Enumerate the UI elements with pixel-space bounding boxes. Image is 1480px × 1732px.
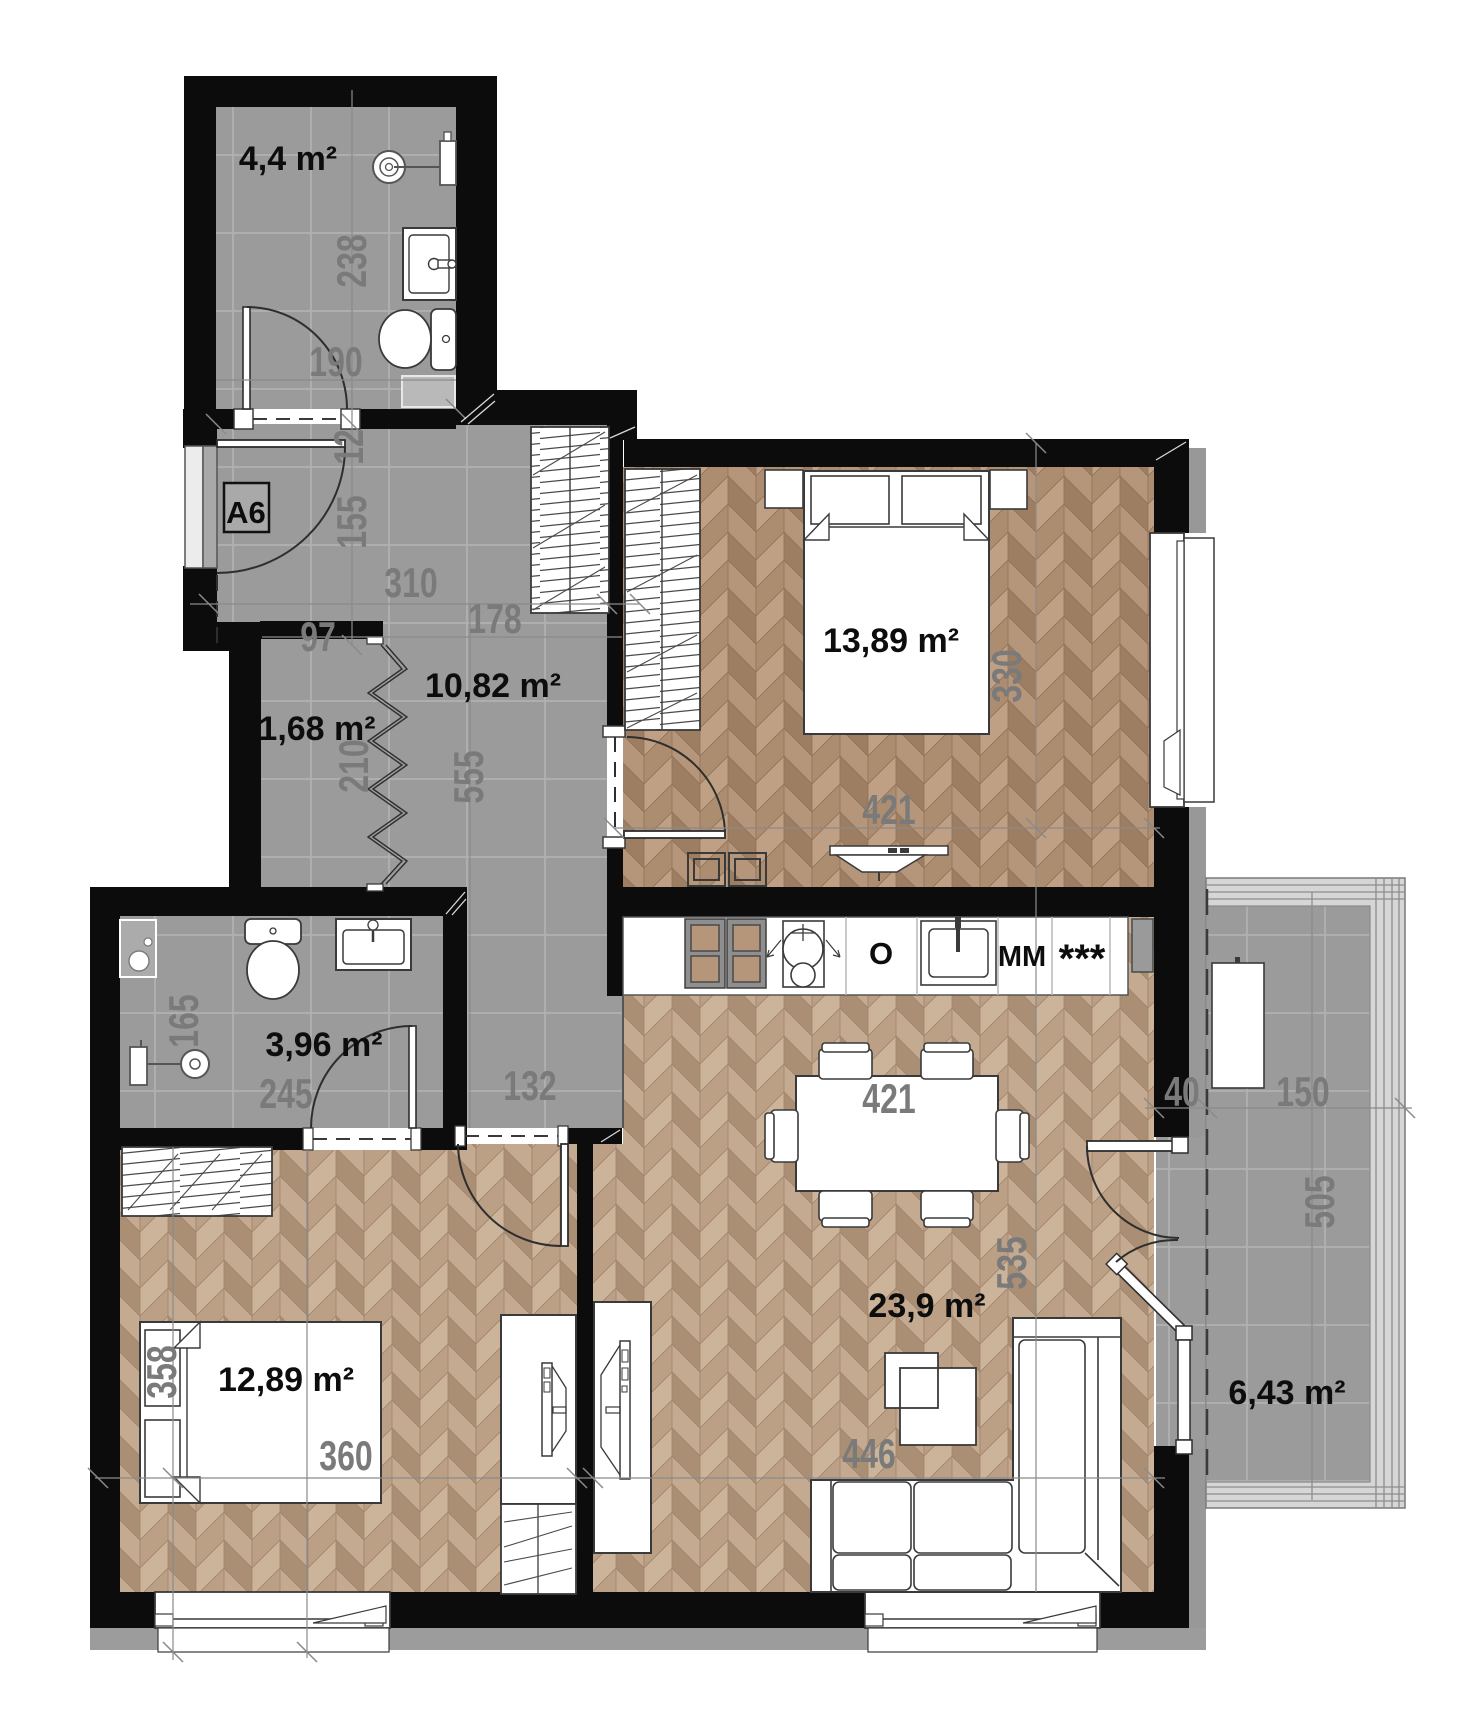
svg-text:421: 421 [862, 1075, 915, 1122]
svg-text:555: 555 [445, 750, 492, 803]
svg-text:6,43 m²: 6,43 m² [1228, 1374, 1345, 1412]
svg-text:***: *** [1059, 937, 1106, 981]
svg-text:535: 535 [988, 1236, 1035, 1289]
svg-text:310: 310 [384, 559, 437, 606]
svg-text:12: 12 [325, 429, 372, 465]
svg-text:505: 505 [1296, 1175, 1343, 1228]
svg-text:178: 178 [468, 595, 521, 642]
svg-text:245: 245 [259, 1070, 312, 1117]
svg-text:13,89 m²: 13,89 m² [823, 622, 959, 660]
svg-text:155: 155 [328, 495, 375, 548]
svg-text:210: 210 [330, 739, 377, 792]
svg-text:421: 421 [862, 786, 915, 833]
svg-text:97: 97 [300, 613, 336, 660]
svg-text:358: 358 [138, 1345, 185, 1398]
svg-text:MM: MM [998, 941, 1046, 973]
svg-text:132: 132 [503, 1062, 556, 1109]
svg-text:23,9 m²: 23,9 m² [868, 1287, 985, 1325]
svg-text:190: 190 [309, 338, 362, 385]
svg-text:238: 238 [328, 234, 375, 287]
svg-text:A6: A6 [226, 495, 266, 530]
svg-text:446: 446 [842, 1430, 895, 1477]
svg-text:O: O [869, 936, 893, 971]
svg-text:360: 360 [319, 1432, 372, 1479]
svg-text:165: 165 [160, 994, 207, 1047]
svg-text:40: 40 [1164, 1068, 1200, 1115]
svg-text:12,89 m²: 12,89 m² [218, 1361, 354, 1399]
svg-text:10,82 m²: 10,82 m² [425, 667, 561, 705]
svg-text:4,4 m²: 4,4 m² [239, 140, 337, 178]
svg-text:330: 330 [983, 649, 1030, 702]
svg-text:150: 150 [1276, 1068, 1329, 1115]
svg-text:3,96 m²: 3,96 m² [265, 1026, 382, 1064]
